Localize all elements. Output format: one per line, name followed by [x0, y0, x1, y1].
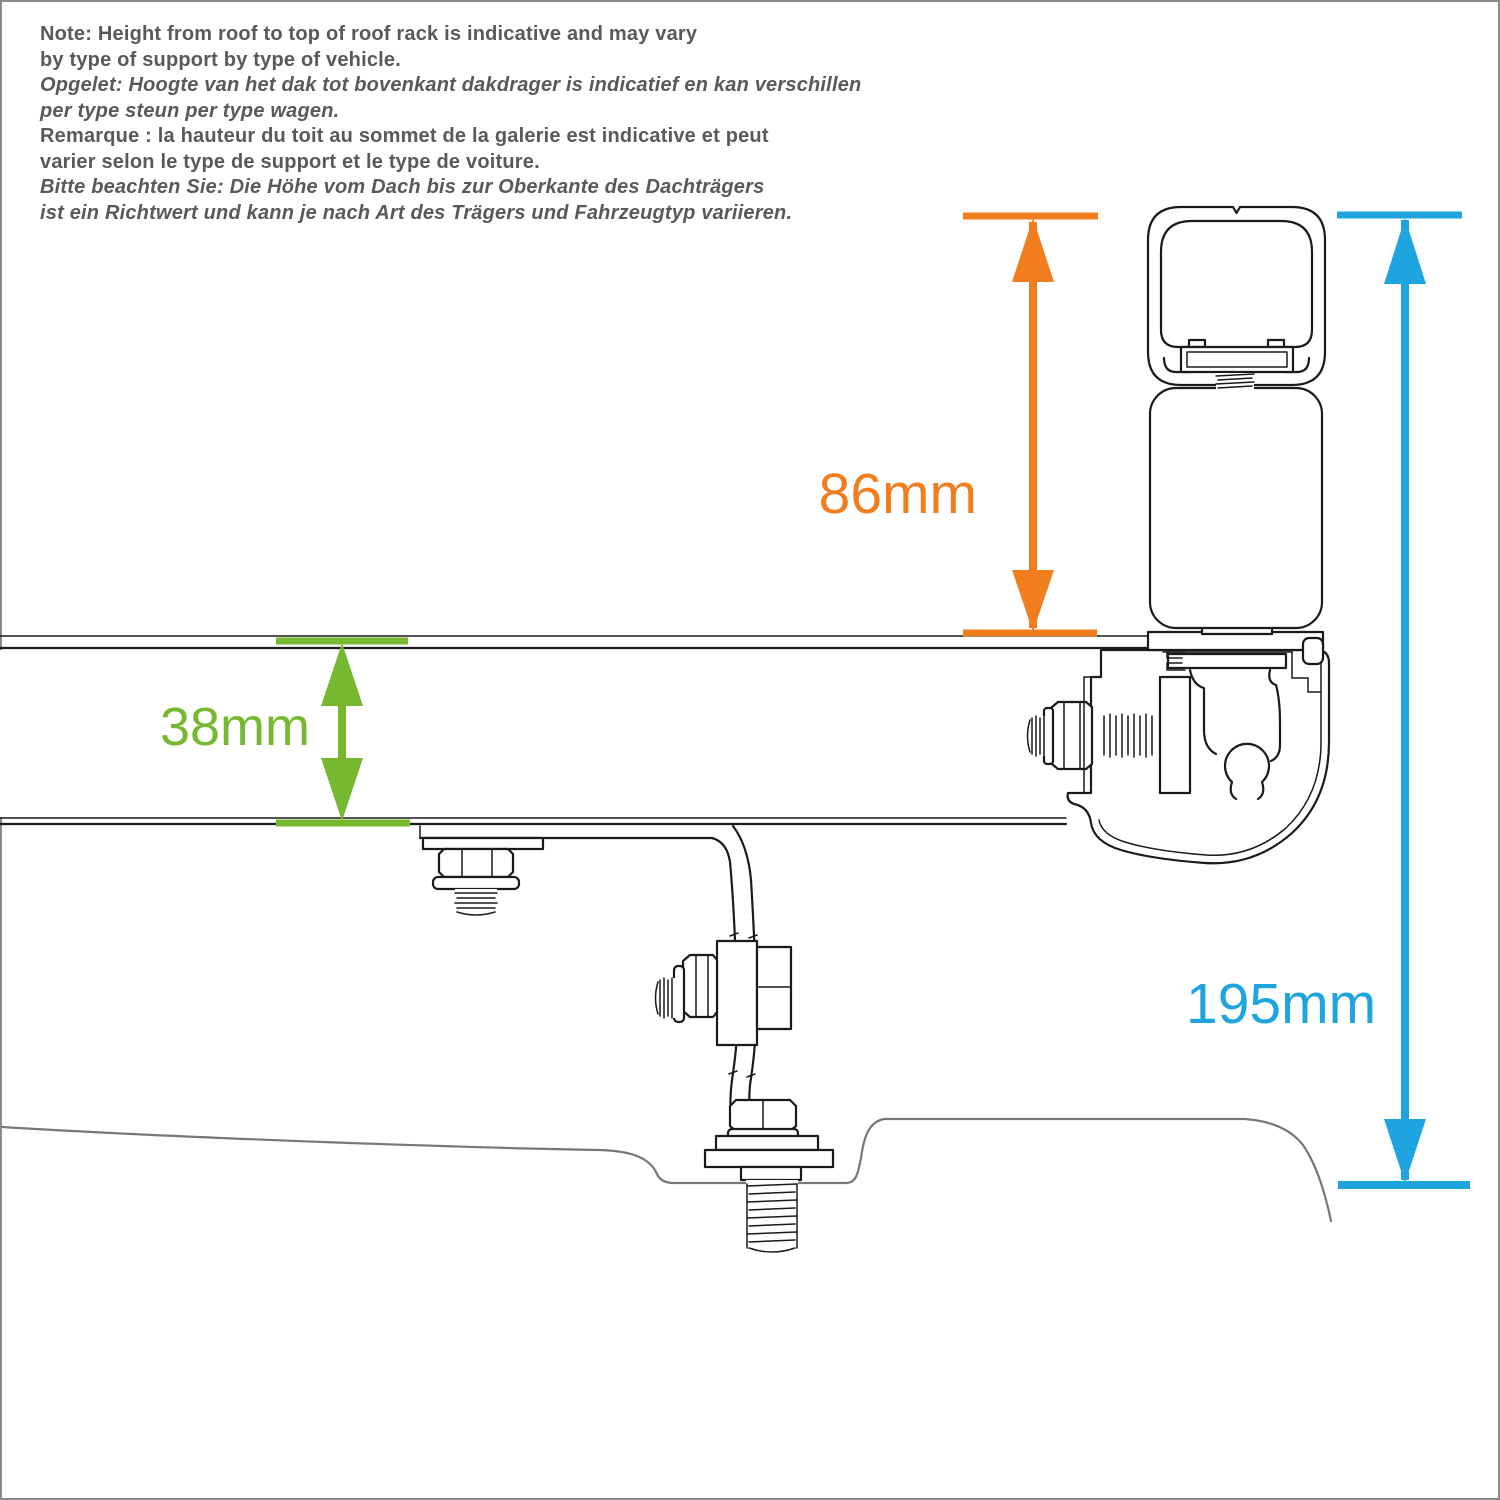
note-line-fr-1: Remarque : la hauteur du toit au sommet …	[40, 124, 1000, 150]
total-height-dimension-label: 195mm	[1186, 971, 1376, 1037]
note-line-en-2: by type of support by type of vehicle.	[40, 48, 1000, 74]
support-tower	[1150, 388, 1322, 628]
bracket-pivot-bolt	[656, 941, 792, 1045]
total-height-dimension-arrow	[1337, 215, 1470, 1185]
note-line-en-1: Note: Height from roof to top of roof ra…	[40, 22, 1000, 48]
z-bracket-assembly	[420, 826, 833, 1252]
note-line-de-1: Bitte beachten Sie: Die Höhe vom Dach bi…	[40, 175, 1000, 201]
rail-mount-nut	[423, 838, 543, 915]
roof-contour-line	[2, 1119, 1331, 1221]
rail-thickness-dimension-label: 38mm	[10, 696, 310, 758]
note-line-fr-2: varier selon le type de support et le ty…	[40, 150, 1000, 176]
crossbar-profile	[1148, 207, 1325, 390]
note-text-block: Note: Height from roof to top of roof ra…	[40, 22, 1000, 226]
roof-rack-dimension-diagram: { "note": { "lines": [ {"text": "Note: H…	[0, 0, 1500, 1500]
note-line-nl-1: Opgelet: Hoogte van het dak tot bovenkan…	[40, 73, 1000, 99]
bracket-foot-bolt	[705, 1100, 833, 1252]
rack-height-dimension-label: 86mm	[677, 461, 977, 527]
note-line-de-2: ist ein Richtwert und kann je nach Art d…	[40, 201, 1000, 227]
rack-height-dimension-arrow	[963, 216, 1098, 633]
note-line-nl-2: per type steun per type wagen.	[40, 99, 1000, 125]
